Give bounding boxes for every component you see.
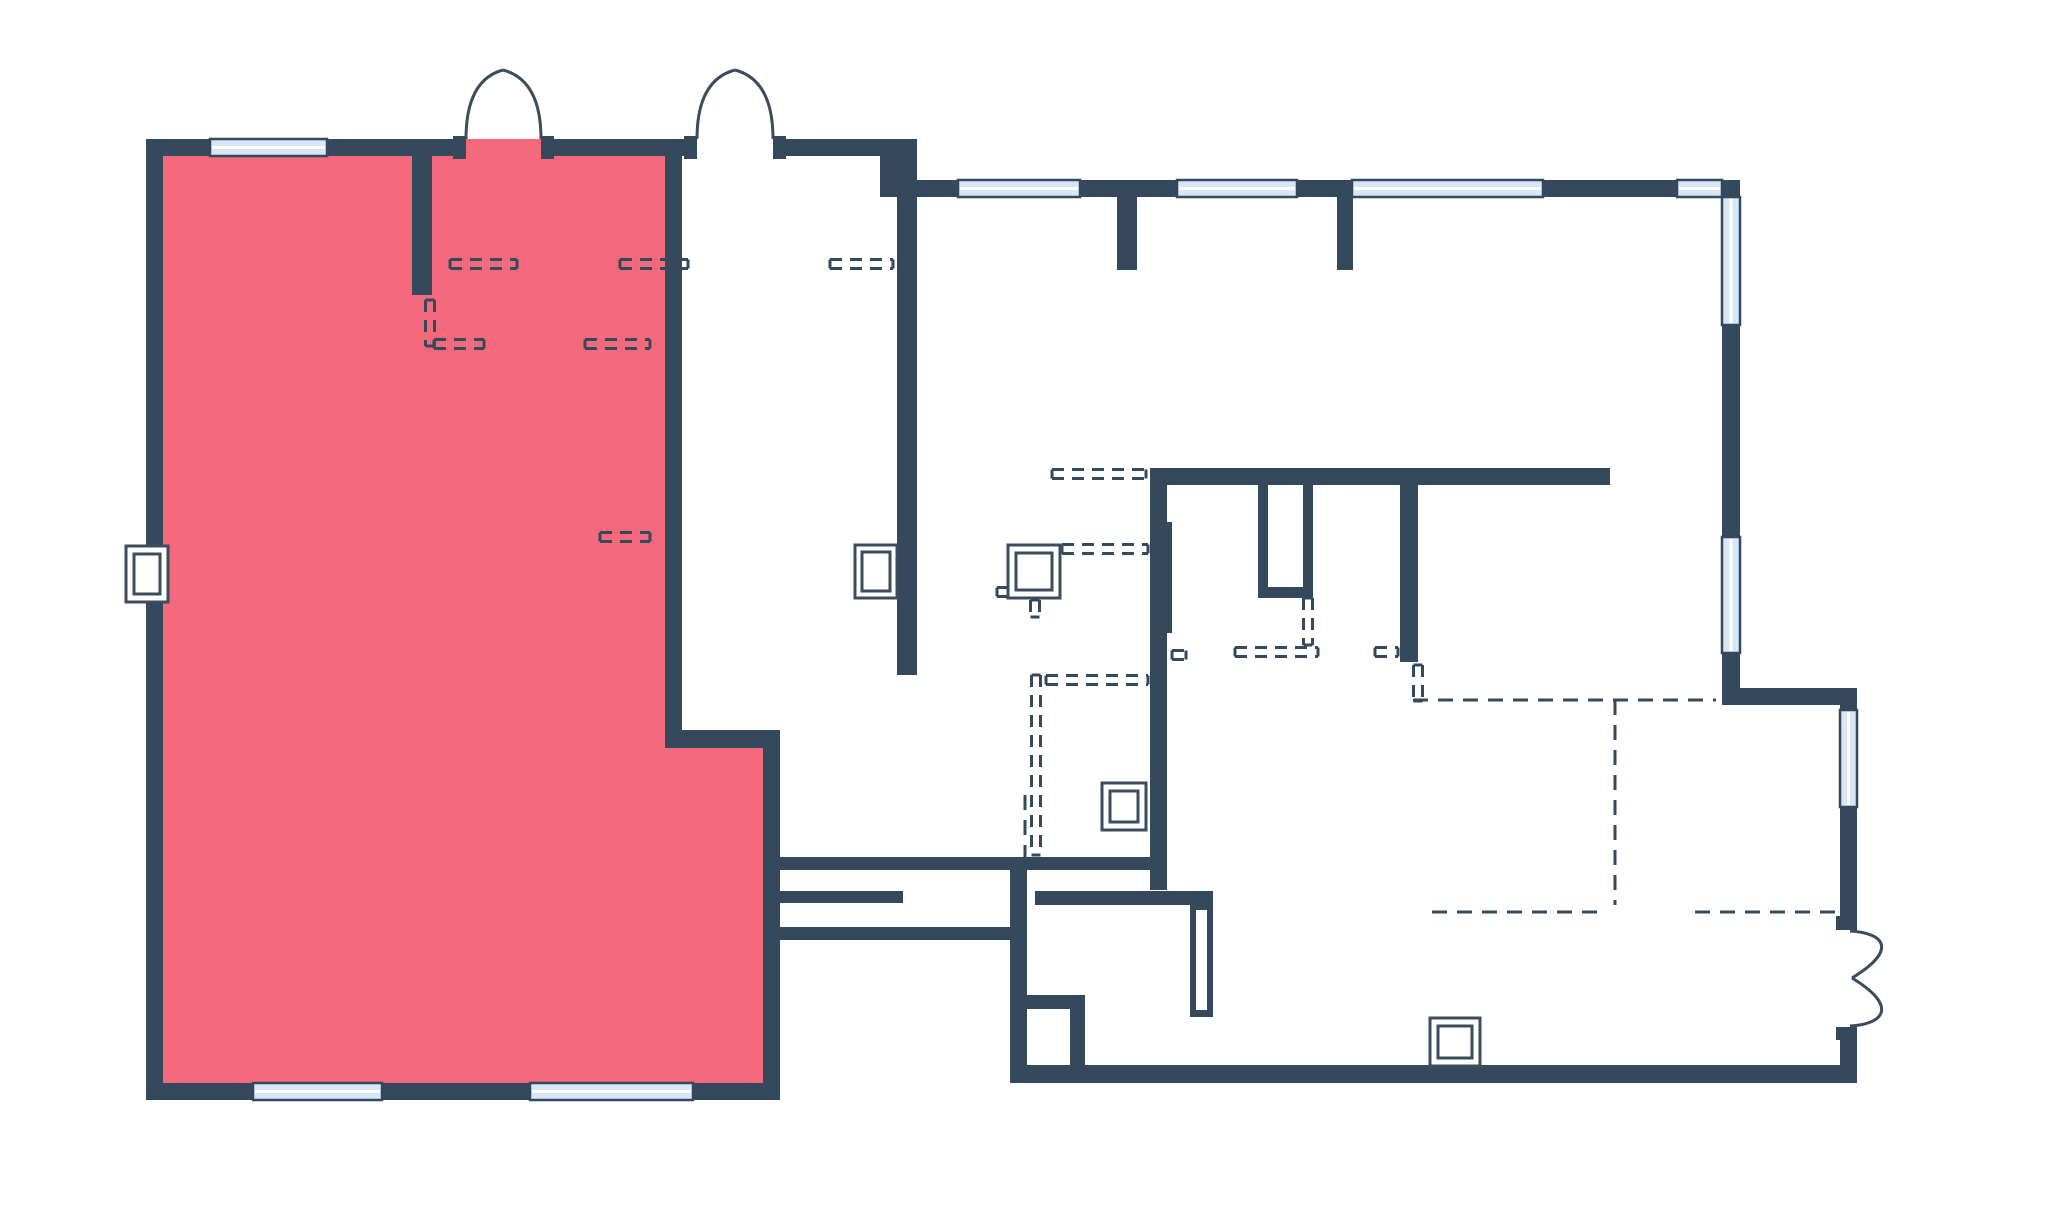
wall bbox=[382, 1083, 530, 1100]
wall bbox=[1303, 485, 1313, 598]
wall bbox=[1337, 197, 1353, 270]
wall bbox=[1258, 587, 1313, 598]
window bbox=[210, 139, 327, 156]
window bbox=[1677, 180, 1722, 197]
shaft-slot bbox=[1196, 910, 1207, 1010]
wall bbox=[880, 139, 917, 197]
wall bbox=[1010, 870, 1027, 1083]
wall bbox=[684, 136, 697, 159]
wall bbox=[1840, 688, 1857, 710]
wall bbox=[1840, 807, 1857, 918]
floorplan-canvas bbox=[0, 0, 2048, 1205]
wall bbox=[1010, 1065, 1857, 1083]
wall bbox=[1836, 916, 1857, 930]
wall bbox=[146, 139, 210, 156]
wall bbox=[1167, 522, 1172, 633]
sink-fixture bbox=[855, 545, 897, 598]
wall-box-fixture-inner bbox=[134, 554, 160, 594]
window bbox=[253, 1083, 382, 1100]
wall bbox=[1722, 325, 1740, 537]
wall bbox=[541, 139, 697, 156]
window bbox=[530, 1083, 693, 1100]
wall bbox=[1722, 180, 1740, 197]
wall bbox=[327, 139, 466, 156]
wall bbox=[773, 136, 786, 159]
wall bbox=[1117, 197, 1137, 270]
wall bbox=[1400, 485, 1418, 662]
wall bbox=[665, 156, 682, 730]
highlighted-room-door-gap bbox=[466, 139, 541, 157]
wall bbox=[1543, 180, 1677, 197]
wall bbox=[763, 748, 780, 1100]
floorplan-page bbox=[0, 0, 2048, 1205]
wall bbox=[917, 180, 958, 197]
wall bbox=[780, 857, 1150, 870]
wall bbox=[1297, 180, 1352, 197]
window bbox=[1840, 710, 1857, 807]
wall bbox=[1070, 1009, 1085, 1083]
sink-fixture-inner bbox=[862, 552, 890, 591]
toilet-fixture bbox=[1008, 545, 1060, 598]
wall bbox=[146, 1083, 253, 1100]
wall bbox=[146, 139, 163, 1100]
wall bbox=[412, 156, 432, 295]
floor-fixture-inner bbox=[1438, 1026, 1472, 1058]
wall bbox=[1080, 180, 1177, 197]
window bbox=[1352, 180, 1543, 197]
window bbox=[1722, 197, 1740, 325]
wall bbox=[1035, 891, 1213, 905]
wall bbox=[897, 197, 917, 675]
wall bbox=[1836, 1027, 1857, 1040]
drain-fixture-inner bbox=[1110, 791, 1138, 822]
wall bbox=[1722, 688, 1857, 705]
wall bbox=[1010, 995, 1085, 1009]
wall bbox=[1150, 468, 1610, 485]
wall bbox=[1258, 485, 1268, 598]
window bbox=[958, 180, 1080, 197]
wall bbox=[1150, 485, 1167, 890]
window bbox=[1177, 180, 1297, 197]
wall bbox=[775, 891, 903, 903]
wall-box-fixture bbox=[126, 546, 168, 602]
wall bbox=[453, 136, 466, 159]
wall bbox=[775, 927, 1010, 940]
window bbox=[1722, 537, 1740, 653]
drain-fixture bbox=[1102, 783, 1146, 830]
wall bbox=[541, 136, 554, 159]
wall bbox=[665, 730, 780, 748]
toilet-fixture-inner bbox=[1016, 553, 1052, 590]
floor-fixture bbox=[1430, 1018, 1480, 1066]
